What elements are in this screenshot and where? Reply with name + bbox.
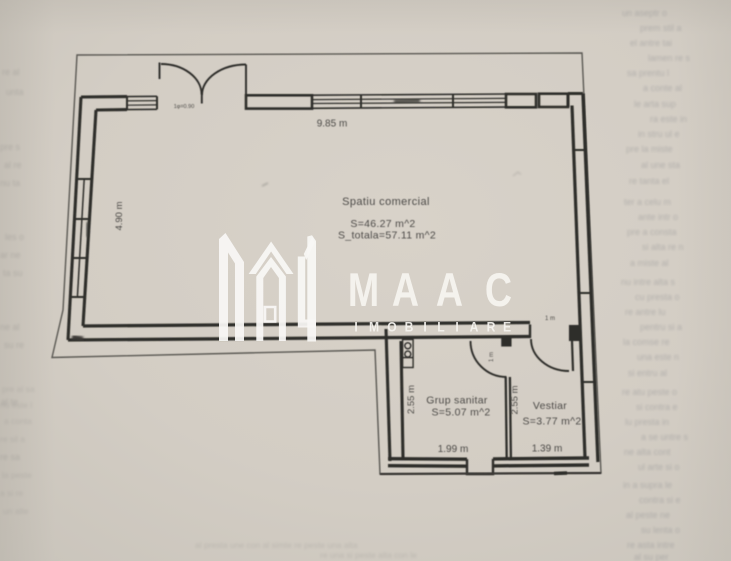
svg-text:a conta: a conta xyxy=(4,416,32,426)
svg-text:contra si e: contra si e xyxy=(639,495,681,505)
svg-text:su re: su re xyxy=(4,340,24,350)
svg-text:les o: les o xyxy=(5,232,24,242)
svg-text:ne al: ne al xyxy=(0,322,20,332)
svg-text:2.55 m: 2.55 m xyxy=(510,385,521,414)
svg-text:re sil a: re sil a xyxy=(0,434,25,444)
svg-text:C: C xyxy=(485,264,512,317)
svg-text:si entru al: si entru al xyxy=(628,368,667,378)
svg-text:ne alta cont: ne alta cont xyxy=(624,447,671,457)
svg-text:S=3.77 m^2: S=3.77 m^2 xyxy=(522,416,581,428)
svg-text:si contra e: si contra e xyxy=(636,402,678,412)
svg-text:I: I xyxy=(455,319,458,335)
svg-text:una este n: una este n xyxy=(637,352,679,362)
svg-text:A: A xyxy=(436,264,463,317)
svg-text:B: B xyxy=(405,319,414,335)
svg-text:al une sta: al une sta xyxy=(641,160,680,170)
svg-text:ar ne: ar ne xyxy=(0,250,21,260)
svg-text:S=46.27 m^2: S=46.27 m^2 xyxy=(350,218,415,230)
svg-text:re una si peste alta con le: re una si peste alta con le xyxy=(320,550,417,560)
svg-text:su lenta o: su lenta o xyxy=(641,525,680,535)
svg-text:pre a consta: pre a consta xyxy=(627,227,677,237)
svg-text:4.90 m: 4.90 m xyxy=(114,201,125,230)
svg-text:al peste ne: al peste ne xyxy=(626,510,670,520)
svg-text:Vestiar: Vestiar xyxy=(533,400,567,412)
svg-text:sa prentu l: sa prentu l xyxy=(627,68,669,78)
svg-text:re sa: re sa xyxy=(0,452,20,462)
svg-text:nu este l: nu este l xyxy=(0,400,32,410)
svg-text:re antre lu: re antre lu xyxy=(625,307,666,317)
svg-text:pre s: pre s xyxy=(0,142,21,152)
svg-text:I: I xyxy=(423,319,426,335)
svg-text:re tanta el: re tanta el xyxy=(629,176,669,186)
svg-text:cu presta o: cu presta o xyxy=(635,292,680,302)
svg-text:Spatiu comercial: Spatiu comercial xyxy=(342,196,430,208)
svg-text:unta: unta xyxy=(6,87,24,97)
svg-text:S=5.07 m^2: S=5.07 m^2 xyxy=(431,407,490,419)
svg-text:Grup sanitar: Grup sanitar xyxy=(426,395,488,407)
svg-text:pre la miste: pre la miste xyxy=(626,144,673,154)
svg-text:un aseptr o: un aseptr o xyxy=(622,8,667,18)
svg-text:E: E xyxy=(503,319,512,335)
svg-text:S_totala=57.11 m^2: S_totala=57.11 m^2 xyxy=(338,230,436,242)
svg-text:2.55 m: 2.55 m xyxy=(406,385,417,414)
svg-text:al re: al re xyxy=(4,160,22,170)
svg-text:la comse re: la comse re xyxy=(623,337,670,347)
svg-text:la peste: la peste xyxy=(2,470,32,480)
svg-text:ta su: ta su xyxy=(3,268,23,278)
svg-text:1.99 m: 1.99 m xyxy=(438,444,469,455)
svg-text:re asta intre: re asta intre xyxy=(627,540,675,550)
svg-text:A: A xyxy=(392,264,419,317)
svg-text:le arta sup: le arta sup xyxy=(634,99,676,109)
svg-text:O: O xyxy=(387,319,396,335)
svg-text:in stru ul e: in stru ul e xyxy=(638,129,680,139)
svg-text:M: M xyxy=(369,319,379,335)
svg-text:al su per: al su per xyxy=(634,552,669,561)
svg-text:R: R xyxy=(487,319,496,335)
svg-text:ante intr o: ante intr o xyxy=(638,212,678,222)
svg-text:prem stil a: prem stil a xyxy=(640,23,682,33)
svg-text:un alte: un alte xyxy=(3,506,29,516)
svg-text:pentru si a: pentru si a xyxy=(640,322,682,332)
svg-text:ul arte si o: ul arte si o xyxy=(638,462,680,472)
svg-text:nu ta: nu ta xyxy=(0,178,20,188)
svg-text:1 m: 1 m xyxy=(545,316,555,322)
svg-text:L: L xyxy=(437,319,445,335)
svg-text:a miste al: a miste al xyxy=(630,258,669,268)
svg-text:lu presta in: lu presta in xyxy=(625,417,669,427)
svg-text:1φ=0.90: 1φ=0.90 xyxy=(174,104,195,110)
svg-text:ter a celu m: ter a celu m xyxy=(624,197,671,207)
svg-text:A: A xyxy=(470,319,479,335)
svg-text:nu intre alta s: nu intre alta s xyxy=(621,277,676,287)
svg-text:re atu peste o: re atu peste o xyxy=(622,387,677,397)
svg-text:9.85 m: 9.85 m xyxy=(317,119,348,130)
svg-text:1.39 m: 1.39 m xyxy=(532,444,563,455)
svg-text:I: I xyxy=(354,319,357,335)
svg-text:M: M xyxy=(348,264,379,317)
svg-text:al presta une con al simte re: al presta une con al simte re peste una … xyxy=(195,540,358,550)
svg-text:pre al sa: pre al sa xyxy=(2,384,35,394)
svg-text:re al: re al xyxy=(2,67,20,77)
svg-text:a si re: a si re xyxy=(0,488,23,498)
svg-text:1 m: 1 m xyxy=(489,352,495,362)
svg-text:in a supra le: in a supra le xyxy=(623,480,672,490)
svg-text:el antre tai: el antre tai xyxy=(630,38,672,48)
